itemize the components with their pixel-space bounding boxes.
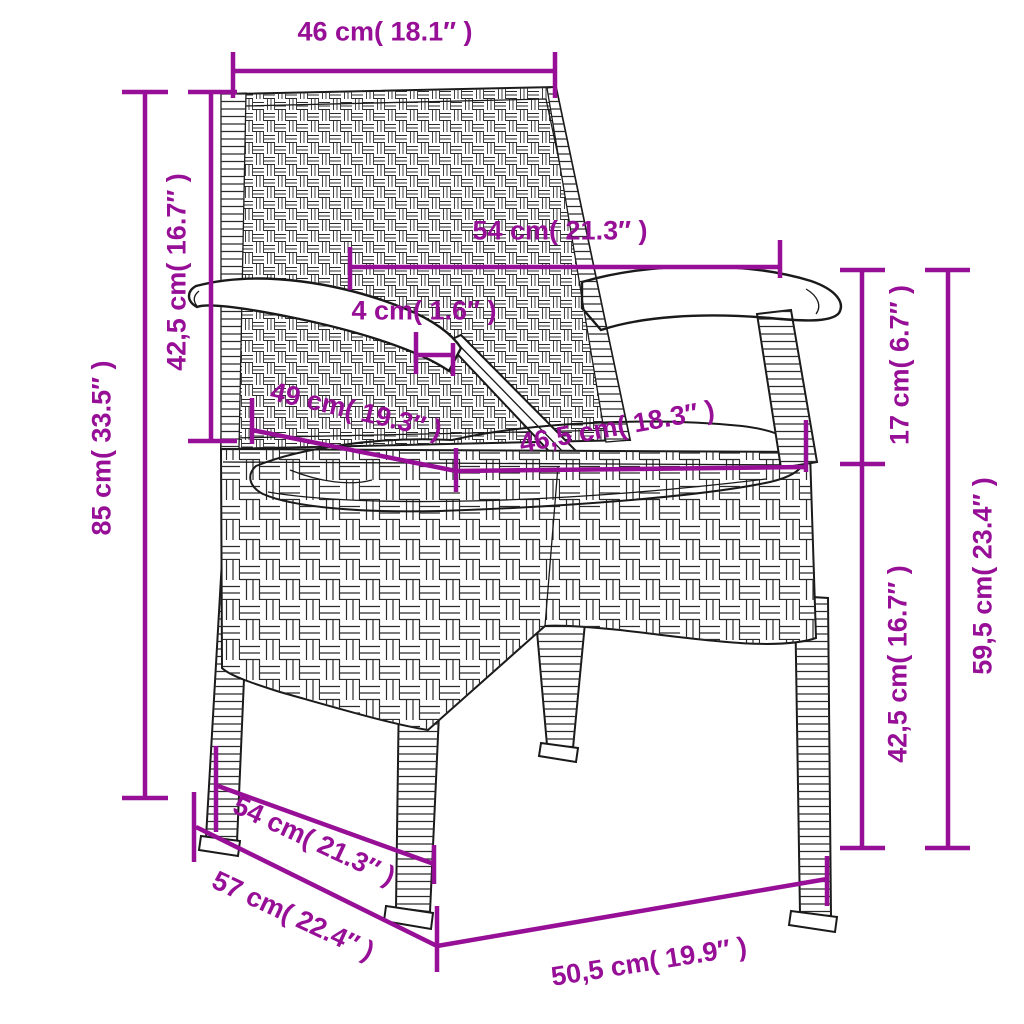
dimension-diagram: 46 cm( 18.1″ ) 42,5 cm( 16.7″ ) 85 cm( 3… <box>0 0 1024 1024</box>
dim-line-armrest-height <box>925 270 970 848</box>
dim-label-armrest-span: 54 cm( 21.3″ ) <box>472 216 647 247</box>
dim-label-back-width: 46 cm( 18.1″ ) <box>297 17 472 48</box>
dim-line-arm-to-seat-and-seat-height <box>840 270 885 848</box>
dim-line-front-width <box>437 856 827 946</box>
dim-label-backrest-height: 42,5 cm( 16.7″ ) <box>162 173 193 371</box>
chair-body <box>221 449 816 730</box>
dim-label-armrest-height: 59,5 cm( 23.4″ ) <box>968 477 999 675</box>
dim-label-armrest-thickness: 4 cm( 1.6″ ) <box>352 296 497 327</box>
dim-label-arm-to-seat: 17 cm( 6.7″ ) <box>885 285 916 445</box>
right-armrest <box>582 266 841 330</box>
dim-label-seat-height: 42,5 cm( 16.7″ ) <box>883 565 914 763</box>
chair-line-art <box>0 0 1024 1024</box>
rear-center-leg <box>536 620 585 762</box>
dim-label-total-height: 85 cm( 33.5″ ) <box>87 360 118 535</box>
